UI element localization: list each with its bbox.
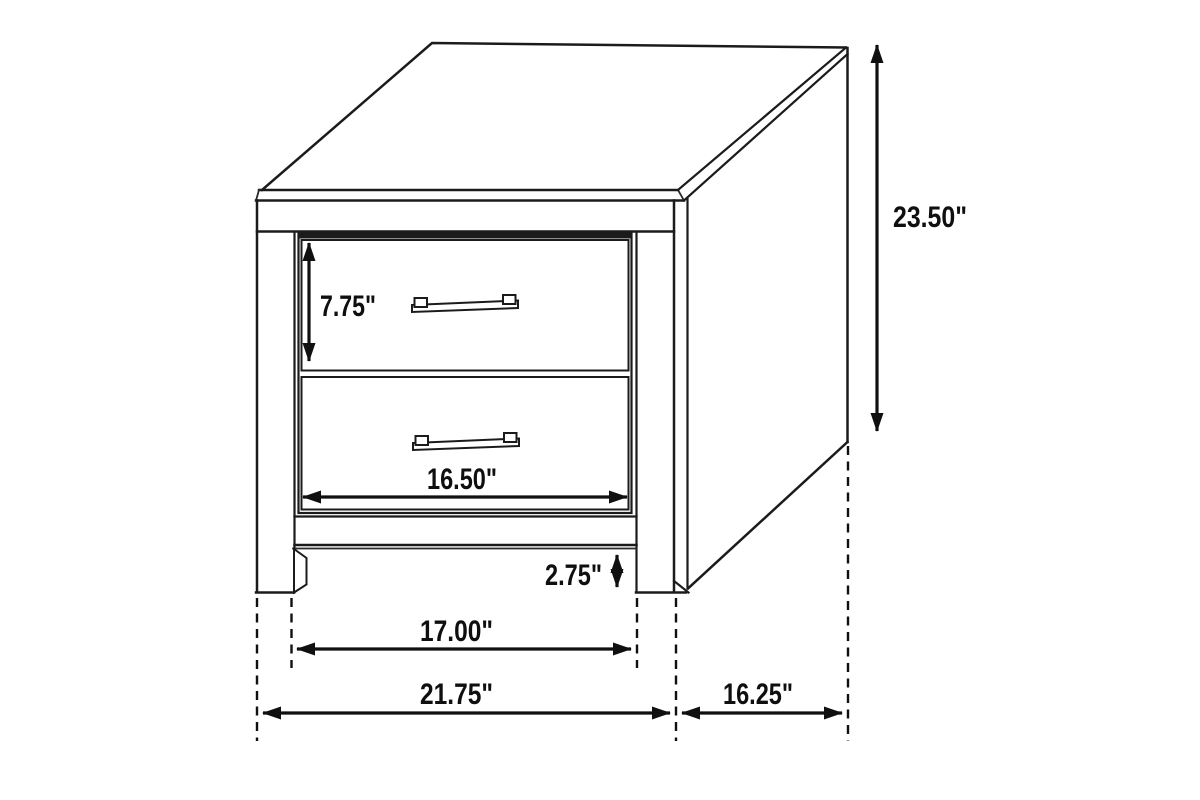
handle-end-right: [504, 433, 517, 442]
top-edge-bevel-left: [256, 190, 259, 201]
dim-label-base-clearance: 2.75": [545, 559, 602, 592]
drawer-top-gap-shadow: [299, 234, 631, 239]
dim-overall-height: 23.50": [877, 45, 967, 431]
diagram-canvas: 23.50" 7.75" 16.50" 2.75" 17.00" 21.75": [0, 0, 1200, 800]
top-face-outline: [262, 43, 846, 190]
right-leg-bevel-edge: [674, 581, 689, 593]
dim-base-clearance: 2.75": [545, 555, 617, 592]
dim-label-overall-width: 21.75": [420, 678, 493, 711]
dim-label-overall-height: 23.50": [893, 201, 967, 234]
legs: [256, 549, 689, 593]
side-panel-bottom-edge: [688, 442, 848, 589]
dim-label-drawer-width: 16.50": [427, 463, 497, 496]
side-panel: [688, 48, 848, 589]
top-panel: [256, 43, 848, 201]
dim-label-overall-depth: 16.25": [723, 678, 793, 711]
handle-end-left: [415, 298, 428, 307]
dim-label-base-width: 17.00": [420, 615, 493, 648]
dim-overall-width: 21.75": [263, 678, 670, 713]
top-edge-bevel-right: [678, 190, 684, 201]
handle-end-right: [503, 295, 516, 304]
left-leg-inner-face: [294, 549, 307, 593]
handle-end-left: [416, 436, 429, 445]
dim-overall-depth: 16.25": [682, 678, 842, 713]
nightstand-dimension-diagram: 23.50" 7.75" 16.50" 2.75" 17.00" 21.75": [0, 0, 1200, 800]
top-side-edge-upper: [678, 48, 846, 191]
top-side-edge-lower: [684, 54, 848, 201]
dim-base-width: 17.00": [297, 615, 631, 649]
dim-label-drawer-height: 7.75": [320, 290, 376, 323]
